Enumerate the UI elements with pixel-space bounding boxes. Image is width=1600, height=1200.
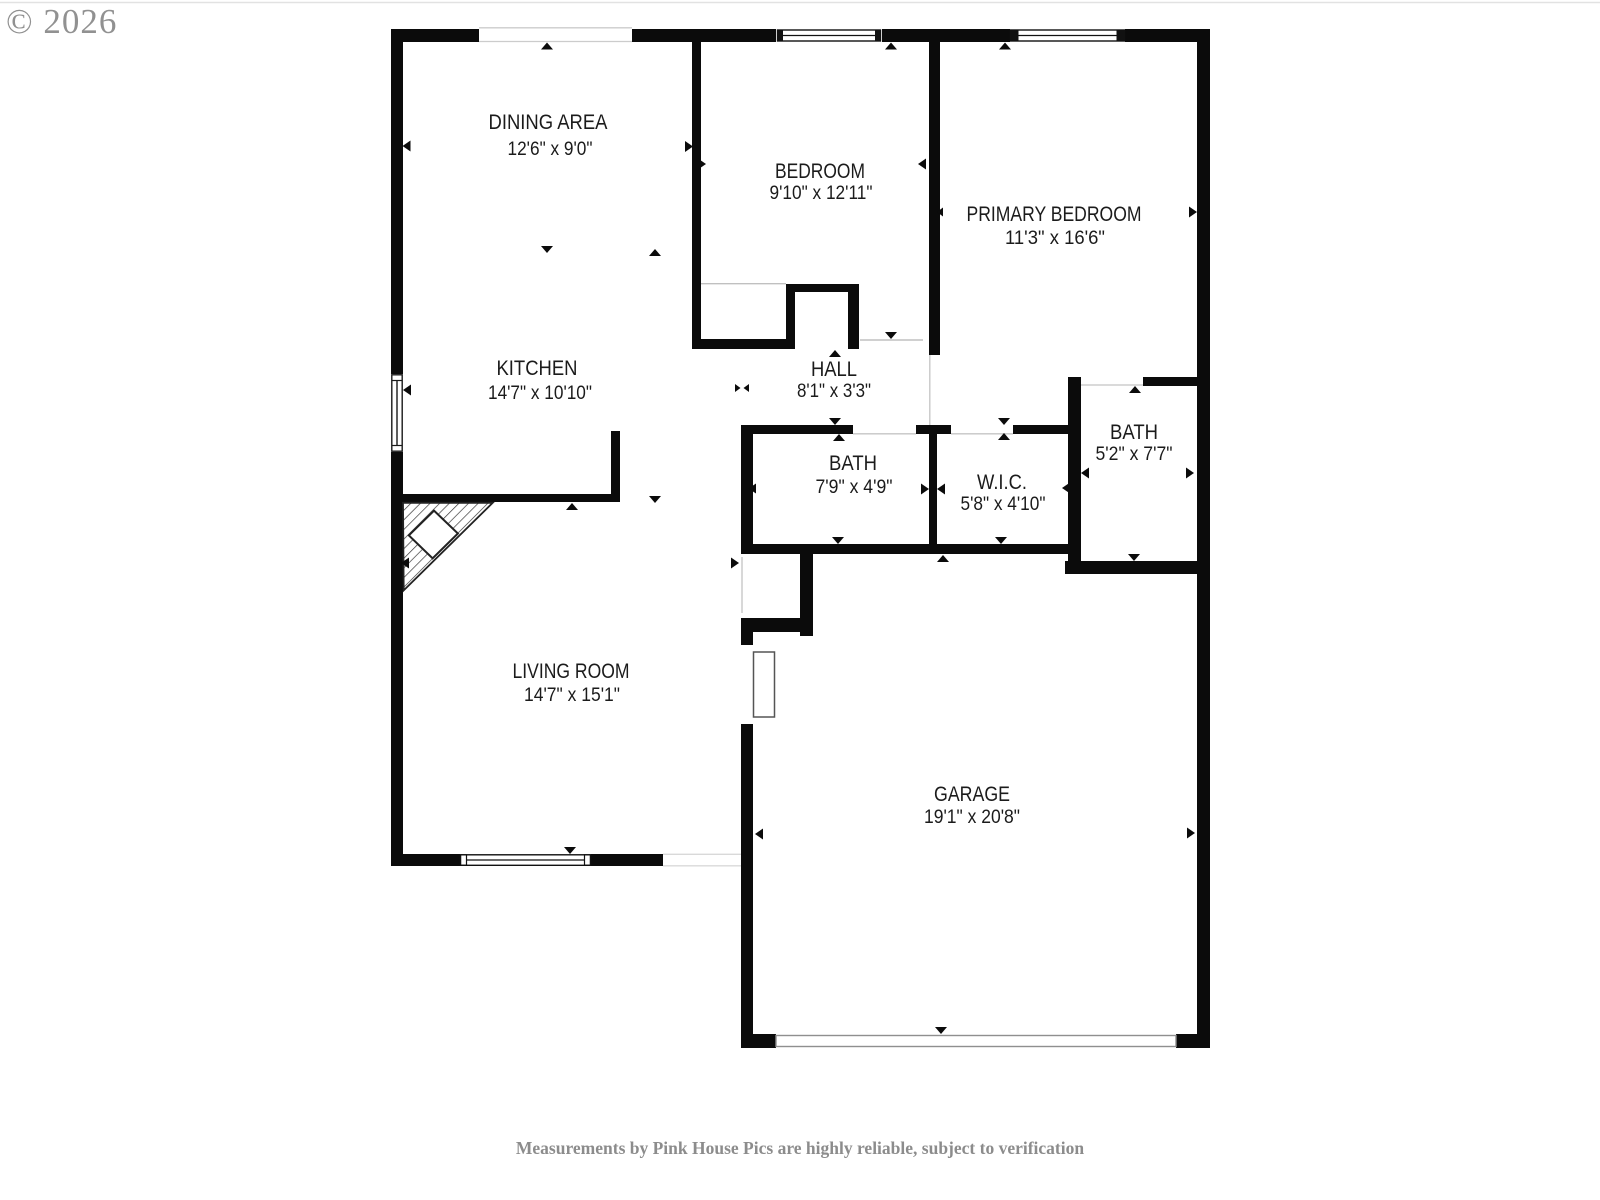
svg-text:PRIMARY BEDROOM: PRIMARY BEDROOM xyxy=(967,203,1142,226)
svg-text:DINING AREA: DINING AREA xyxy=(489,111,608,134)
svg-text:BEDROOM: BEDROOM xyxy=(775,160,865,183)
svg-text:LIVING ROOM: LIVING ROOM xyxy=(513,660,630,683)
svg-text:12'6" x 9'0": 12'6" x 9'0" xyxy=(508,138,593,160)
svg-text:19'1" x 20'8": 19'1" x 20'8" xyxy=(924,806,1020,828)
svg-text:KITCHEN: KITCHEN xyxy=(497,357,578,380)
svg-text:BATH: BATH xyxy=(829,452,877,475)
svg-text:9'10" x 12'11": 9'10" x 12'11" xyxy=(770,182,873,204)
svg-text:© 2026: © 2026 xyxy=(6,2,117,41)
svg-text:W.I.C.: W.I.C. xyxy=(977,471,1027,494)
svg-text:11'3" x 16'6": 11'3" x 16'6" xyxy=(1005,227,1105,249)
svg-text:HALL: HALL xyxy=(811,358,857,381)
svg-text:BATH: BATH xyxy=(1110,421,1158,444)
svg-text:Measurements by Pink House Pic: Measurements by Pink House Pics are high… xyxy=(516,1138,1084,1158)
svg-text:GARAGE: GARAGE xyxy=(934,783,1010,806)
svg-text:14'7" x 10'10": 14'7" x 10'10" xyxy=(488,382,592,404)
svg-text:5'2" x 7'7": 5'2" x 7'7" xyxy=(1096,443,1173,465)
svg-text:7'9" x 4'9": 7'9" x 4'9" xyxy=(816,476,893,498)
svg-text:8'1" x 3'3": 8'1" x 3'3" xyxy=(797,380,871,402)
svg-text:14'7" x 15'1": 14'7" x 15'1" xyxy=(524,684,620,706)
svg-text:5'8" x 4'10": 5'8" x 4'10" xyxy=(961,493,1046,515)
